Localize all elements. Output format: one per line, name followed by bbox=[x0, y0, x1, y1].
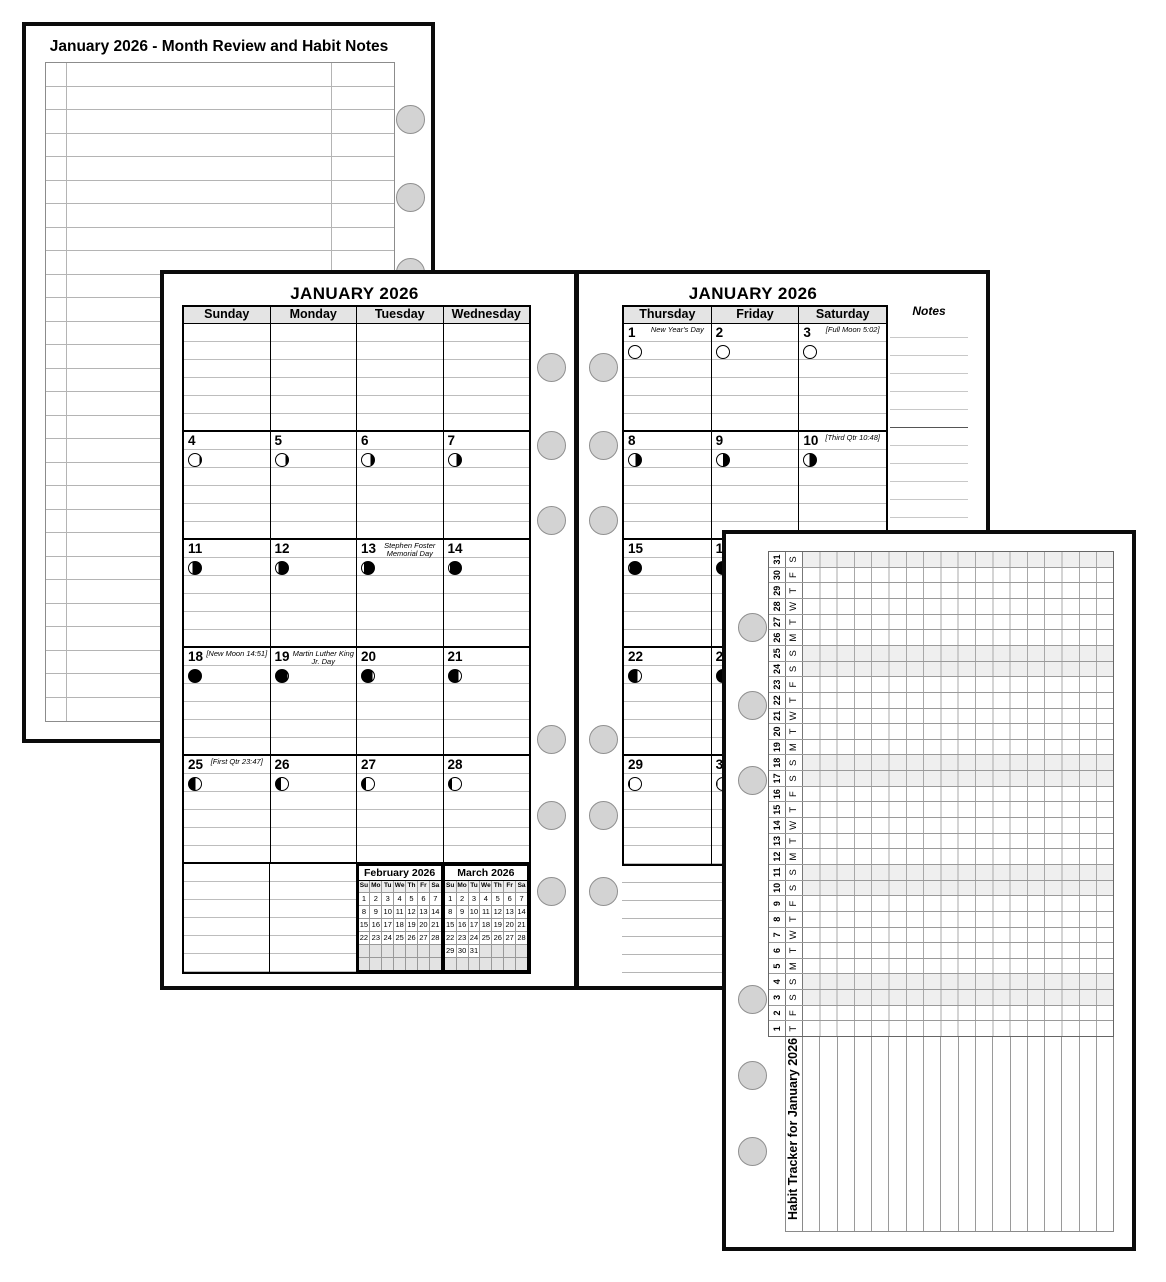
notes-row bbox=[46, 63, 394, 87]
habit-name-row bbox=[976, 1037, 993, 1231]
habit-day-number: 17 bbox=[769, 771, 786, 786]
binder-hole bbox=[738, 691, 767, 720]
habit-day-number: 1 bbox=[769, 1021, 786, 1036]
mini-month-day bbox=[406, 958, 418, 970]
mini-month-day bbox=[418, 958, 430, 970]
habit-cell-column bbox=[803, 865, 1113, 880]
day-number: 7 bbox=[448, 433, 456, 448]
day-number: 11 bbox=[188, 541, 202, 556]
mini-month-dow: Fr bbox=[418, 881, 430, 892]
habit-day-number: 11 bbox=[769, 865, 786, 880]
moon-phase-icon bbox=[188, 669, 202, 683]
mini-month-day: 8 bbox=[359, 906, 371, 918]
mini-month-day bbox=[480, 958, 492, 970]
week-row: 111213Stephen Foster Memorial Day14 bbox=[184, 540, 529, 648]
mini-month-day: 23 bbox=[457, 932, 469, 944]
habit-day-letter: S bbox=[786, 755, 803, 770]
notes-margin-cell bbox=[46, 627, 67, 650]
moon-phase-icon bbox=[448, 561, 462, 575]
habit-day-number: 29 bbox=[769, 583, 786, 598]
notes-margin-cell bbox=[46, 228, 67, 251]
day-note: [New Moon 14:51] bbox=[206, 650, 268, 658]
notes-line-row bbox=[890, 464, 968, 482]
mini-month-day: 16 bbox=[457, 919, 469, 931]
weekday-header: Friday bbox=[712, 307, 800, 323]
habit-day-number: 24 bbox=[769, 662, 786, 677]
week-row: 8910[Third Qtr 10:48] bbox=[624, 432, 886, 540]
mini-month-dow: Mo bbox=[370, 881, 382, 892]
habit-day-column: 25S bbox=[769, 645, 1113, 661]
notes-main-cell bbox=[67, 181, 332, 204]
binder-hole bbox=[738, 766, 767, 795]
notes-row bbox=[46, 228, 394, 252]
habit-cell-column bbox=[803, 615, 1113, 630]
day-number: 10 bbox=[803, 433, 818, 448]
mini-month-day bbox=[359, 958, 371, 970]
habit-day-letter: T bbox=[786, 693, 803, 708]
habit-day-column: 18S bbox=[769, 754, 1113, 770]
moon-phase-icon bbox=[628, 453, 642, 467]
notes-margin-cell bbox=[46, 533, 67, 556]
mini-month-day: 14 bbox=[430, 906, 441, 918]
notes-margin-cell bbox=[46, 157, 67, 180]
day-number: 2 bbox=[716, 325, 724, 340]
habit-name-row bbox=[855, 1037, 872, 1231]
mini-month-day: 12 bbox=[406, 906, 418, 918]
day-cell: 20 bbox=[357, 648, 444, 754]
habit-cell-column bbox=[803, 630, 1113, 645]
mini-month-day: 9 bbox=[370, 906, 382, 918]
habit-name-row bbox=[1080, 1037, 1097, 1231]
habit-cell-column bbox=[803, 802, 1113, 817]
notes-line-row bbox=[890, 500, 968, 518]
habit-day-number: 28 bbox=[769, 599, 786, 614]
day-number: 18 bbox=[188, 649, 203, 664]
day-cell: 12 bbox=[271, 540, 358, 646]
habit-day-letter: T bbox=[786, 615, 803, 630]
day-number: 3 bbox=[803, 325, 811, 340]
mini-month-day bbox=[492, 958, 504, 970]
notes-side-cell bbox=[332, 63, 394, 86]
habit-cell-column bbox=[803, 709, 1113, 724]
notes-line-row bbox=[890, 356, 968, 374]
habit-day-letter: T bbox=[786, 912, 803, 927]
mini-month-title: February 2026 bbox=[359, 866, 441, 880]
habit-cell-column bbox=[803, 928, 1113, 943]
mini-month-day: 2 bbox=[457, 893, 469, 905]
mini-month-day: 1 bbox=[445, 893, 457, 905]
notes-side-cell bbox=[332, 181, 394, 204]
day-note: Martin Luther King Jr. Day bbox=[293, 650, 355, 667]
mini-month-day bbox=[480, 945, 492, 957]
habit-day-number: 6 bbox=[769, 943, 786, 958]
mini-month-week: 293031 bbox=[445, 944, 527, 957]
habit-name-row bbox=[803, 1037, 820, 1231]
habit-day-column: 4S bbox=[769, 973, 1113, 989]
habit-name-row bbox=[1097, 1037, 1114, 1231]
moon-phase-icon bbox=[188, 561, 202, 575]
notes-row bbox=[46, 110, 394, 134]
binder-hole bbox=[738, 1061, 767, 1090]
mini-month-day: 28 bbox=[516, 932, 527, 944]
notes-column-header: Notes bbox=[890, 304, 968, 318]
mini-month-day: 17 bbox=[469, 919, 481, 931]
mini-month-day: 30 bbox=[457, 945, 469, 957]
calendar-header-row: ThursdayFridaySaturday bbox=[624, 307, 886, 324]
habit-day-column: 7W bbox=[769, 927, 1113, 943]
habit-cell-column bbox=[803, 662, 1113, 677]
habit-day-column: 10S bbox=[769, 880, 1113, 896]
habit-day-column: 9F bbox=[769, 895, 1113, 911]
mini-month-day: 10 bbox=[382, 906, 394, 918]
calendar-table: SundayMondayTuesdayWednesday4567111213St… bbox=[182, 305, 531, 974]
mini-month-day: 16 bbox=[370, 919, 382, 931]
habit-day-column: 19M bbox=[769, 739, 1113, 755]
habit-day-letter: F bbox=[786, 787, 803, 802]
habit-day-letter: S bbox=[786, 990, 803, 1005]
week-row bbox=[184, 324, 529, 432]
notes-line-row bbox=[890, 392, 968, 410]
notes-main-cell bbox=[67, 110, 332, 133]
binder-hole bbox=[589, 353, 618, 382]
habit-day-letter: T bbox=[786, 583, 803, 598]
mini-month-day: 25 bbox=[480, 932, 492, 944]
habit-day-column: 21W bbox=[769, 708, 1113, 724]
moon-phase-icon bbox=[628, 669, 642, 683]
mini-month-day: 10 bbox=[469, 906, 481, 918]
day-number: 20 bbox=[361, 649, 376, 664]
notes-main-cell bbox=[67, 63, 332, 86]
mini-month-week bbox=[445, 957, 527, 970]
habit-name-row bbox=[889, 1037, 906, 1231]
moon-phase-icon bbox=[361, 453, 375, 467]
day-cell: 21 bbox=[444, 648, 530, 754]
day-note: [Third Qtr 10:48] bbox=[821, 434, 884, 442]
habit-day-number: 13 bbox=[769, 834, 786, 849]
habit-day-column: 13T bbox=[769, 833, 1113, 849]
mini-month-day bbox=[516, 958, 527, 970]
moon-phase-icon bbox=[628, 561, 642, 575]
habit-day-letter: S bbox=[786, 552, 803, 567]
binder-hole bbox=[396, 105, 425, 134]
mini-month-day: 3 bbox=[469, 893, 481, 905]
habit-day-number: 15 bbox=[769, 802, 786, 817]
habit-day-number: 8 bbox=[769, 912, 786, 927]
mini-month: February 2026SuMoTuWeThFrSa1234567891011… bbox=[357, 864, 443, 972]
weekday-header: Wednesday bbox=[444, 307, 530, 323]
habit-cell-column bbox=[803, 646, 1113, 661]
binder-hole bbox=[537, 431, 566, 460]
habit-day-number: 20 bbox=[769, 724, 786, 739]
day-note: [Full Moon 5:02] bbox=[821, 326, 884, 334]
notes-margin-cell bbox=[46, 110, 67, 133]
notes-margin-cell bbox=[46, 204, 67, 227]
mini-month-day bbox=[445, 958, 457, 970]
habit-cell-column bbox=[803, 990, 1113, 1005]
habit-cell-column bbox=[803, 740, 1113, 755]
habit-day-column: 23F bbox=[769, 676, 1113, 692]
moon-phase-icon bbox=[716, 345, 730, 359]
mini-month-day: 6 bbox=[418, 893, 430, 905]
habit-day-number: 5 bbox=[769, 959, 786, 974]
day-cell: 15 bbox=[624, 540, 712, 646]
habit-cell-column bbox=[803, 599, 1113, 614]
mini-month-day: 11 bbox=[394, 906, 406, 918]
binder-hole bbox=[589, 801, 618, 830]
notes-side-cell bbox=[332, 110, 394, 133]
notes-margin-cell bbox=[46, 392, 67, 415]
mini-month-week: 22232425262728 bbox=[359, 931, 441, 944]
day-cell: 9 bbox=[712, 432, 800, 538]
notes-line-row bbox=[890, 482, 968, 500]
mini-month-dow: Su bbox=[359, 881, 371, 892]
mini-month-week: 22232425262728 bbox=[445, 931, 527, 944]
day-cell: 3[Full Moon 5:02] bbox=[799, 324, 886, 430]
habit-day-letter: M bbox=[786, 849, 803, 864]
notes-row bbox=[46, 204, 394, 228]
day-number: 8 bbox=[628, 433, 636, 448]
day-cell: 19Martin Luther King Jr. Day bbox=[271, 648, 358, 754]
habit-day-letter: F bbox=[786, 677, 803, 692]
habit-cell-column bbox=[803, 912, 1113, 927]
mini-month-week: 891011121314 bbox=[359, 905, 441, 918]
habit-cell-column bbox=[803, 1006, 1113, 1021]
mini-month-day: 4 bbox=[480, 893, 492, 905]
mini-month-day: 6 bbox=[504, 893, 516, 905]
binder-hole bbox=[738, 613, 767, 642]
mini-month-dow: Fr bbox=[504, 881, 516, 892]
habit-day-number: 30 bbox=[769, 568, 786, 583]
mini-month-day: 31 bbox=[469, 945, 481, 957]
habit-day-column: 8T bbox=[769, 911, 1113, 927]
notes-main-cell bbox=[67, 204, 332, 227]
habit-day-letter: S bbox=[786, 771, 803, 786]
habit-cell-column bbox=[803, 755, 1113, 770]
habit-name-row bbox=[993, 1037, 1010, 1231]
mini-month-day: 14 bbox=[516, 906, 527, 918]
binder-hole bbox=[589, 506, 618, 535]
day-cell: 25[First Qtr 23:47] bbox=[184, 756, 271, 862]
day-number: 21 bbox=[448, 649, 463, 664]
week-row: 1New Year's Day23[Full Moon 5:02] bbox=[624, 324, 886, 432]
moon-phase-icon bbox=[361, 777, 375, 791]
day-cell: 28 bbox=[444, 756, 530, 862]
day-number: 6 bbox=[361, 433, 369, 448]
mini-month-week bbox=[359, 944, 441, 957]
notes-margin-cell bbox=[46, 580, 67, 603]
notes-side-cell bbox=[332, 134, 394, 157]
mini-month-dow-row: SuMoTuWeThFrSa bbox=[445, 880, 527, 892]
day-cell: 5 bbox=[271, 432, 358, 538]
moon-phase-icon bbox=[716, 453, 730, 467]
habit-cell-column bbox=[803, 974, 1113, 989]
week-row: 18[New Moon 14:51]19Martin Luther King J… bbox=[184, 648, 529, 756]
day-note: New Year's Day bbox=[646, 326, 709, 334]
habit-day-column: 31S bbox=[769, 552, 1113, 567]
habit-name-row bbox=[1045, 1037, 1062, 1231]
binder-hole bbox=[537, 353, 566, 382]
habit-day-column: 2F bbox=[769, 1005, 1113, 1021]
day-number: 12 bbox=[275, 541, 290, 556]
binder-hole bbox=[738, 985, 767, 1014]
notes-side-cell bbox=[332, 204, 394, 227]
notes-side-cell bbox=[332, 157, 394, 180]
habit-day-number: 4 bbox=[769, 974, 786, 989]
habit-day-number: 12 bbox=[769, 849, 786, 864]
notes-main-cell bbox=[67, 134, 332, 157]
habit-name-row bbox=[1028, 1037, 1045, 1231]
habit-day-letter: S bbox=[786, 662, 803, 677]
mini-month-week: 1234567 bbox=[359, 892, 441, 905]
mini-month-day bbox=[382, 945, 394, 957]
habit-cell-column bbox=[803, 677, 1113, 692]
day-cell: 11 bbox=[184, 540, 271, 646]
mini-month-day bbox=[504, 945, 516, 957]
habit-name-row bbox=[907, 1037, 924, 1231]
notes-margin-cell bbox=[46, 651, 67, 674]
habit-day-column: 11S bbox=[769, 864, 1113, 880]
habit-day-number: 21 bbox=[769, 709, 786, 724]
notes-line-row bbox=[890, 320, 968, 338]
habit-cell-column bbox=[803, 959, 1113, 974]
habit-day-number: 25 bbox=[769, 646, 786, 661]
notes-margin-cell bbox=[46, 134, 67, 157]
notes-main-cell bbox=[67, 157, 332, 180]
moon-phase-icon bbox=[275, 669, 289, 683]
calendar-page-left: JANUARY 2026 SundayMondayTuesdayWednesda… bbox=[160, 270, 578, 990]
notes-margin-cell bbox=[46, 439, 67, 462]
mini-month-day: 13 bbox=[504, 906, 516, 918]
notes-margin-cell bbox=[46, 486, 67, 509]
habit-cell-column bbox=[803, 583, 1113, 598]
habit-day-letter: T bbox=[786, 1021, 803, 1036]
habit-cell-column bbox=[803, 787, 1113, 802]
mini-month-week bbox=[359, 957, 441, 970]
mini-month-day: 11 bbox=[480, 906, 492, 918]
habit-day-number: 14 bbox=[769, 818, 786, 833]
notes-margin-cell bbox=[46, 369, 67, 392]
mini-month-dow: Su bbox=[445, 881, 457, 892]
mini-month-day: 15 bbox=[445, 919, 457, 931]
mini-month-dow: We bbox=[480, 881, 492, 892]
habit-cell-column bbox=[803, 881, 1113, 896]
binder-hole bbox=[589, 431, 618, 460]
day-number: 29 bbox=[628, 757, 643, 772]
notes-row bbox=[46, 181, 394, 205]
mini-month-day bbox=[504, 958, 516, 970]
habit-day-number: 9 bbox=[769, 896, 786, 911]
mini-month-dow: Mo bbox=[457, 881, 469, 892]
notes-line-row bbox=[890, 446, 968, 464]
moon-phase-icon bbox=[628, 777, 642, 791]
habit-day-number: 2 bbox=[769, 1006, 786, 1021]
binder-hole bbox=[738, 1137, 767, 1166]
binder-hole bbox=[537, 725, 566, 754]
habit-day-letter: F bbox=[786, 1006, 803, 1021]
mini-month-dow: We bbox=[394, 881, 406, 892]
mini-month-day: 26 bbox=[406, 932, 418, 944]
day-cell: 6 bbox=[357, 432, 444, 538]
habit-day-column: 29T bbox=[769, 582, 1113, 598]
day-cell bbox=[357, 324, 444, 430]
habit-day-column: 15T bbox=[769, 801, 1113, 817]
mini-month-day: 3 bbox=[382, 893, 394, 905]
habit-name-row bbox=[1062, 1037, 1079, 1231]
habit-day-number: 26 bbox=[769, 630, 786, 645]
mini-month-dow: Sa bbox=[516, 881, 527, 892]
habit-cell-column bbox=[803, 724, 1113, 739]
habit-day-column: 26M bbox=[769, 629, 1113, 645]
notes-main-cell bbox=[67, 228, 332, 251]
calendar-title: JANUARY 2026 bbox=[622, 284, 884, 304]
day-number: 26 bbox=[275, 757, 290, 772]
day-cell: 13Stephen Foster Memorial Day bbox=[357, 540, 444, 646]
mini-month-day bbox=[406, 945, 418, 957]
weekday-header: Tuesday bbox=[357, 307, 444, 323]
habit-cell-column bbox=[803, 552, 1113, 567]
habit-day-letter: S bbox=[786, 974, 803, 989]
mini-month-day: 1 bbox=[359, 893, 371, 905]
notes-margin-cell bbox=[46, 674, 67, 697]
habit-day-letter: S bbox=[786, 865, 803, 880]
mini-month-week: 891011121314 bbox=[445, 905, 527, 918]
habit-name-row bbox=[838, 1037, 855, 1231]
mini-month-day: 23 bbox=[370, 932, 382, 944]
habit-cell-column bbox=[803, 849, 1113, 864]
notes-margin-cell bbox=[46, 604, 67, 627]
day-number: 4 bbox=[188, 433, 196, 448]
habit-cell-column bbox=[803, 896, 1113, 911]
day-cell: 14 bbox=[444, 540, 530, 646]
weekday-header: Monday bbox=[271, 307, 358, 323]
mini-month-day bbox=[370, 958, 382, 970]
habit-day-letter: F bbox=[786, 568, 803, 583]
mini-month-day: 28 bbox=[430, 932, 441, 944]
mini-month-day: 5 bbox=[492, 893, 504, 905]
habit-day-number: 23 bbox=[769, 677, 786, 692]
day-note: Stephen Foster Memorial Day bbox=[379, 542, 441, 559]
habit-day-number: 18 bbox=[769, 755, 786, 770]
weekday-header: Saturday bbox=[799, 307, 886, 323]
notes-line-row bbox=[890, 338, 968, 356]
weekday-header: Thursday bbox=[624, 307, 712, 323]
moon-phase-icon bbox=[361, 561, 375, 575]
notes-line-row bbox=[890, 374, 968, 392]
day-number: 15 bbox=[628, 541, 643, 556]
habit-day-letter: S bbox=[786, 881, 803, 896]
habit-day-letter: W bbox=[786, 709, 803, 724]
moon-phase-icon bbox=[448, 777, 462, 791]
habit-cell-column bbox=[803, 771, 1113, 786]
binder-hole bbox=[537, 877, 566, 906]
notes-margin-cell bbox=[46, 322, 67, 345]
mini-month-day: 21 bbox=[430, 919, 441, 931]
moon-phase-icon bbox=[628, 345, 642, 359]
binder-hole bbox=[537, 801, 566, 830]
habit-cell-column bbox=[803, 818, 1113, 833]
mini-month-day: 17 bbox=[382, 919, 394, 931]
habit-day-number: 10 bbox=[769, 881, 786, 896]
notes-main-cell bbox=[67, 87, 332, 110]
day-cell: 4 bbox=[184, 432, 271, 538]
habit-day-column: 28W bbox=[769, 598, 1113, 614]
habit-cell-column bbox=[803, 568, 1113, 583]
notes-margin-cell bbox=[46, 298, 67, 321]
mini-month-day: 2 bbox=[370, 893, 382, 905]
habit-day-column: 6T bbox=[769, 942, 1113, 958]
binder-hole bbox=[589, 725, 618, 754]
mini-month-day bbox=[394, 945, 406, 957]
